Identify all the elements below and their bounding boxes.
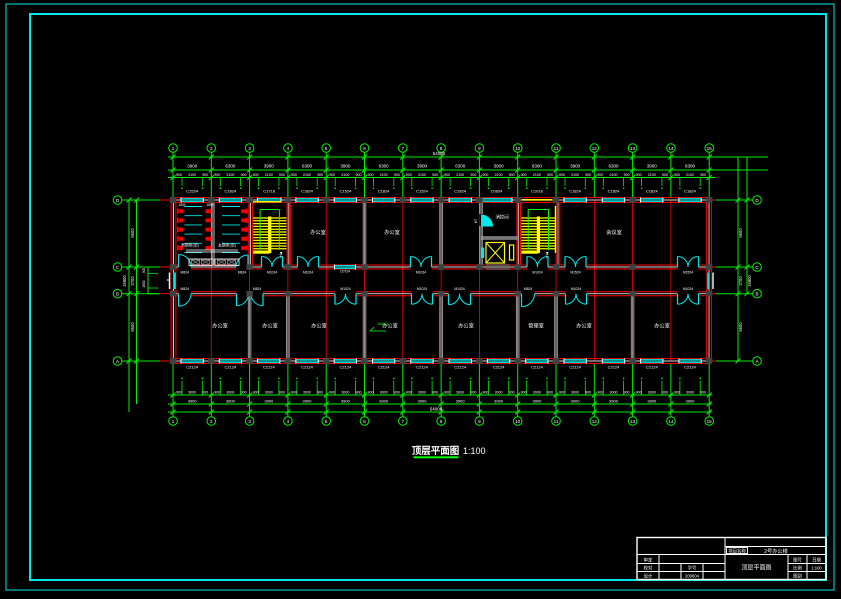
svg-text:900: 900 bbox=[585, 391, 591, 395]
svg-text:5: 5 bbox=[325, 419, 328, 424]
svg-text:900: 900 bbox=[470, 173, 476, 177]
svg-text:C2124: C2124 bbox=[569, 365, 582, 370]
svg-text:900: 900 bbox=[547, 173, 553, 177]
svg-text:审定: 审定 bbox=[644, 556, 653, 563]
svg-text:900: 900 bbox=[597, 173, 603, 177]
svg-text:15: 15 bbox=[707, 146, 713, 151]
svg-text:2100: 2100 bbox=[686, 173, 694, 177]
svg-text:B: B bbox=[755, 292, 758, 297]
svg-text:C1018: C1018 bbox=[531, 189, 544, 194]
svg-text:3000: 3000 bbox=[495, 391, 503, 395]
svg-text:办公室: 办公室 bbox=[310, 228, 326, 236]
svg-text:M7: M7 bbox=[474, 219, 478, 224]
svg-text:3000: 3000 bbox=[265, 391, 273, 395]
svg-text:男厕所(旧): 男厕所(旧) bbox=[181, 243, 199, 248]
svg-text:7: 7 bbox=[402, 146, 405, 151]
svg-text:2100: 2100 bbox=[648, 173, 656, 177]
svg-text:900: 900 bbox=[444, 391, 450, 395]
svg-text:C1524: C1524 bbox=[340, 189, 353, 194]
svg-text:办公室: 办公室 bbox=[311, 322, 327, 330]
svg-text:15900: 15900 bbox=[122, 275, 127, 287]
svg-text:3900: 3900 bbox=[647, 164, 658, 169]
svg-text:6600: 6600 bbox=[130, 228, 135, 238]
svg-text:10: 10 bbox=[515, 146, 521, 151]
svg-text:C1824: C1824 bbox=[378, 189, 391, 194]
svg-text:3000: 3000 bbox=[456, 391, 464, 395]
svg-text:12: 12 bbox=[592, 146, 598, 151]
svg-text:M824: M824 bbox=[238, 271, 247, 275]
svg-text:C1718: C1718 bbox=[263, 189, 276, 194]
svg-text:3900: 3900 bbox=[340, 164, 351, 169]
svg-text:2100: 2100 bbox=[418, 173, 426, 177]
svg-text:办公室: 办公室 bbox=[262, 322, 278, 330]
svg-text:C1824: C1824 bbox=[301, 189, 314, 194]
svg-text:女厕所(旧): 女厕所(旧) bbox=[218, 243, 236, 248]
svg-text:6300: 6300 bbox=[225, 164, 236, 169]
svg-text:设计: 设计 bbox=[644, 573, 653, 580]
svg-text:7: 7 bbox=[402, 419, 405, 424]
svg-text:2: 2 bbox=[210, 146, 213, 151]
svg-text:顶层平面图: 顶层平面图 bbox=[741, 565, 771, 572]
svg-text:3000: 3000 bbox=[686, 391, 694, 395]
svg-text:2100: 2100 bbox=[265, 173, 273, 177]
svg-text:2100: 2100 bbox=[495, 173, 503, 177]
svg-text:3900: 3900 bbox=[264, 399, 274, 404]
svg-text:C2124: C2124 bbox=[646, 365, 659, 370]
svg-text:900: 900 bbox=[368, 391, 374, 395]
svg-text:6300: 6300 bbox=[379, 164, 390, 169]
svg-text:M1024: M1024 bbox=[532, 271, 542, 275]
svg-text:会议室: 会议室 bbox=[606, 228, 622, 236]
svg-text:6: 6 bbox=[363, 419, 366, 424]
svg-text:3900: 3900 bbox=[188, 399, 198, 404]
svg-text:15900: 15900 bbox=[747, 275, 752, 287]
svg-text:3900: 3900 bbox=[609, 399, 619, 404]
svg-text:900: 900 bbox=[482, 391, 488, 395]
svg-text:900: 900 bbox=[547, 391, 553, 395]
svg-text:2100: 2100 bbox=[380, 173, 388, 177]
svg-text:15: 15 bbox=[707, 419, 713, 424]
svg-text:900: 900 bbox=[202, 391, 208, 395]
svg-text:900: 900 bbox=[202, 173, 208, 177]
svg-text:1:100: 1:100 bbox=[811, 566, 822, 571]
svg-text:3000: 3000 bbox=[226, 391, 234, 395]
svg-text:3000: 3000 bbox=[341, 391, 349, 395]
svg-text:6300: 6300 bbox=[532, 164, 543, 169]
svg-text:5: 5 bbox=[325, 146, 328, 151]
svg-text:项目名称: 项目名称 bbox=[728, 548, 746, 555]
svg-text:54000: 54000 bbox=[430, 407, 443, 412]
svg-text:M1524: M1524 bbox=[570, 271, 580, 275]
svg-text:11: 11 bbox=[554, 419, 559, 424]
svg-text:900: 900 bbox=[406, 391, 412, 395]
svg-text:C2124: C2124 bbox=[531, 365, 544, 370]
svg-text:900: 900 bbox=[559, 173, 565, 177]
svg-text:9: 9 bbox=[478, 419, 481, 424]
svg-text:M824: M824 bbox=[524, 287, 533, 291]
svg-text:1: 1 bbox=[172, 419, 175, 424]
svg-text:M824: M824 bbox=[181, 271, 190, 275]
svg-text:900: 900 bbox=[624, 173, 630, 177]
svg-text:900: 900 bbox=[585, 173, 591, 177]
svg-text:C2124: C2124 bbox=[186, 365, 199, 370]
svg-text:办公室: 办公室 bbox=[458, 322, 474, 330]
svg-text:M1024: M1024 bbox=[416, 271, 426, 275]
svg-text:54000: 54000 bbox=[433, 151, 446, 156]
svg-text:900: 900 bbox=[329, 391, 335, 395]
svg-text:1800: 1800 bbox=[142, 280, 146, 287]
svg-text:4: 4 bbox=[287, 146, 290, 151]
svg-text:900: 900 bbox=[176, 173, 182, 177]
svg-text:3900: 3900 bbox=[494, 399, 504, 404]
svg-text:1800: 1800 bbox=[178, 203, 185, 207]
svg-text:消控间: 消控间 bbox=[495, 214, 508, 221]
svg-text:3000: 3000 bbox=[571, 391, 579, 395]
svg-text:6300: 6300 bbox=[685, 164, 696, 169]
svg-text:3900: 3900 bbox=[647, 399, 657, 404]
svg-text:900: 900 bbox=[470, 391, 476, 395]
svg-text:C1824: C1824 bbox=[569, 189, 582, 194]
svg-text:8: 8 bbox=[440, 419, 443, 424]
svg-text:3900: 3900 bbox=[417, 164, 428, 169]
svg-text:C1824: C1824 bbox=[646, 189, 659, 194]
svg-text:4: 4 bbox=[287, 419, 290, 424]
svg-text:M1024: M1024 bbox=[454, 287, 464, 291]
svg-text:M1024: M1024 bbox=[571, 287, 581, 291]
svg-text:900: 900 bbox=[559, 391, 565, 395]
svg-text:1: 1 bbox=[172, 146, 175, 151]
svg-text:6300: 6300 bbox=[608, 164, 619, 169]
svg-text:办公室: 办公室 bbox=[384, 228, 400, 236]
svg-text:C2124: C2124 bbox=[493, 365, 506, 370]
svg-text:3900: 3900 bbox=[226, 399, 236, 404]
svg-text:900: 900 bbox=[700, 173, 706, 177]
svg-text:6300: 6300 bbox=[455, 164, 466, 169]
svg-text:900: 900 bbox=[444, 173, 450, 177]
svg-text:2100: 2100 bbox=[533, 173, 541, 177]
svg-text:900: 900 bbox=[356, 173, 362, 177]
svg-text:900: 900 bbox=[142, 268, 146, 274]
svg-text:900: 900 bbox=[624, 391, 630, 395]
svg-text:M1024: M1024 bbox=[267, 271, 277, 275]
svg-text:M1024: M1024 bbox=[683, 287, 693, 291]
svg-text:C2124: C2124 bbox=[301, 365, 314, 370]
svg-text:900: 900 bbox=[291, 391, 297, 395]
svg-text:3900: 3900 bbox=[570, 164, 581, 169]
svg-text:900: 900 bbox=[662, 173, 668, 177]
svg-text:6600: 6600 bbox=[130, 322, 135, 332]
svg-text:9: 9 bbox=[478, 146, 481, 151]
svg-text:M824: M824 bbox=[253, 287, 262, 291]
svg-text:C1524: C1524 bbox=[186, 189, 199, 194]
svg-text:C1824: C1824 bbox=[454, 189, 467, 194]
svg-text:3: 3 bbox=[248, 419, 251, 424]
svg-text:900: 900 bbox=[241, 391, 247, 395]
svg-text:C2124: C2124 bbox=[378, 365, 391, 370]
svg-text:900: 900 bbox=[356, 391, 362, 395]
svg-text:900: 900 bbox=[241, 173, 247, 177]
svg-text:14: 14 bbox=[668, 419, 674, 424]
svg-text:3900: 3900 bbox=[532, 399, 542, 404]
svg-text:校对: 校对 bbox=[644, 565, 653, 572]
svg-text:3900: 3900 bbox=[341, 399, 351, 404]
svg-text:900: 900 bbox=[279, 173, 285, 177]
svg-text:2100: 2100 bbox=[571, 173, 579, 177]
svg-text:12: 12 bbox=[592, 419, 598, 424]
svg-text:13: 13 bbox=[630, 419, 636, 424]
svg-text:900: 900 bbox=[394, 391, 400, 395]
svg-text:900: 900 bbox=[674, 391, 680, 395]
svg-text:C1824: C1824 bbox=[684, 189, 697, 194]
svg-text:学号: 学号 bbox=[688, 565, 697, 572]
svg-text:2100: 2100 bbox=[456, 173, 464, 177]
svg-text:C0924: C0924 bbox=[491, 189, 504, 194]
svg-text:C1824: C1824 bbox=[608, 189, 621, 194]
svg-text:900: 900 bbox=[662, 391, 668, 395]
svg-text:2700: 2700 bbox=[130, 276, 135, 286]
svg-text:900: 900 bbox=[176, 391, 182, 395]
svg-text:900: 900 bbox=[432, 173, 438, 177]
svg-text:900: 900 bbox=[521, 391, 527, 395]
svg-text:3000: 3000 bbox=[303, 391, 311, 395]
svg-text:比例: 比例 bbox=[793, 565, 802, 572]
svg-text:900: 900 bbox=[674, 173, 680, 177]
svg-text:1M823: 1M823 bbox=[377, 322, 388, 326]
svg-text:M1524: M1524 bbox=[683, 271, 693, 275]
svg-text:6600: 6600 bbox=[738, 228, 743, 238]
svg-text:3900: 3900 bbox=[187, 164, 198, 169]
svg-text:顶层平面图: 顶层平面图 bbox=[412, 446, 460, 457]
svg-text:C0724: C0724 bbox=[340, 270, 350, 274]
svg-text:900: 900 bbox=[253, 391, 259, 395]
svg-text:3900: 3900 bbox=[303, 399, 313, 404]
svg-text:B: B bbox=[116, 292, 119, 297]
svg-text:900: 900 bbox=[317, 391, 323, 395]
svg-text:3000: 3000 bbox=[533, 391, 541, 395]
svg-text:900: 900 bbox=[521, 173, 527, 177]
svg-text:办公室: 办公室 bbox=[654, 322, 670, 330]
svg-text:6300: 6300 bbox=[302, 164, 313, 169]
svg-text:C2124: C2124 bbox=[263, 365, 276, 370]
svg-text:1800: 1800 bbox=[206, 203, 213, 207]
svg-text:图别: 图别 bbox=[793, 573, 802, 580]
svg-text:2100: 2100 bbox=[303, 173, 311, 177]
svg-text:900: 900 bbox=[329, 173, 335, 177]
svg-text:900: 900 bbox=[368, 173, 374, 177]
svg-text:13: 13 bbox=[630, 146, 636, 151]
svg-text:C2124: C2124 bbox=[340, 365, 353, 370]
svg-text:C2124: C2124 bbox=[608, 365, 621, 370]
svg-text:900: 900 bbox=[700, 391, 706, 395]
svg-text:3000: 3000 bbox=[188, 391, 196, 395]
svg-text:900: 900 bbox=[406, 173, 412, 177]
svg-text:200604: 200604 bbox=[685, 574, 700, 579]
svg-text:2700: 2700 bbox=[738, 276, 743, 286]
svg-text:3000: 3000 bbox=[648, 391, 656, 395]
svg-text:1:100: 1:100 bbox=[463, 446, 486, 456]
svg-text:900: 900 bbox=[291, 173, 297, 177]
svg-text:900: 900 bbox=[214, 173, 220, 177]
svg-text:3000: 3000 bbox=[380, 391, 388, 395]
svg-text:3000: 3000 bbox=[418, 391, 426, 395]
svg-text:6600: 6600 bbox=[738, 322, 743, 332]
svg-text:2100: 2100 bbox=[226, 173, 234, 177]
svg-text:3900: 3900 bbox=[456, 399, 466, 404]
svg-text:3900: 3900 bbox=[494, 164, 505, 169]
svg-text:14: 14 bbox=[668, 146, 674, 151]
svg-text:3900: 3900 bbox=[264, 164, 275, 169]
svg-text:6: 6 bbox=[363, 146, 366, 151]
svg-text:900: 900 bbox=[253, 173, 259, 177]
svg-text:900: 900 bbox=[636, 391, 642, 395]
svg-text:C2124: C2124 bbox=[225, 365, 238, 370]
svg-text:900: 900 bbox=[597, 391, 603, 395]
svg-text:900: 900 bbox=[394, 173, 400, 177]
svg-text:900: 900 bbox=[636, 173, 642, 177]
svg-text:2100: 2100 bbox=[341, 173, 349, 177]
svg-text:M1024: M1024 bbox=[340, 287, 350, 291]
svg-text:办公室: 办公室 bbox=[576, 322, 592, 330]
svg-text:M1024: M1024 bbox=[303, 271, 313, 275]
svg-text:900: 900 bbox=[317, 173, 323, 177]
svg-text:管理室: 管理室 bbox=[528, 322, 544, 330]
svg-text:900: 900 bbox=[482, 173, 488, 177]
svg-text:900: 900 bbox=[509, 173, 515, 177]
svg-text:900: 900 bbox=[509, 391, 515, 395]
svg-text:2: 2 bbox=[210, 419, 213, 424]
svg-text:2100: 2100 bbox=[188, 173, 196, 177]
svg-text:M824: M824 bbox=[181, 287, 190, 291]
svg-text:3900: 3900 bbox=[571, 399, 581, 404]
svg-text:900: 900 bbox=[279, 391, 285, 395]
svg-text:900: 900 bbox=[214, 391, 220, 395]
svg-text:3900: 3900 bbox=[379, 399, 389, 404]
svg-text:3900: 3900 bbox=[418, 399, 428, 404]
svg-text:办公室: 办公室 bbox=[212, 322, 228, 330]
svg-text:C2124: C2124 bbox=[684, 365, 697, 370]
svg-text:C1524: C1524 bbox=[416, 189, 429, 194]
svg-text:C2124: C2124 bbox=[454, 365, 467, 370]
svg-text:900: 900 bbox=[432, 391, 438, 395]
svg-text:2号办公楼: 2号办公楼 bbox=[764, 547, 788, 555]
svg-text:11: 11 bbox=[554, 146, 559, 151]
svg-text:C1824: C1824 bbox=[225, 189, 238, 194]
svg-text:M1024: M1024 bbox=[417, 287, 427, 291]
svg-text:2100: 2100 bbox=[610, 173, 618, 177]
svg-text:3000: 3000 bbox=[610, 391, 618, 395]
svg-text:3: 3 bbox=[248, 146, 251, 151]
svg-text:3900: 3900 bbox=[686, 399, 696, 404]
svg-text:10: 10 bbox=[515, 419, 521, 424]
svg-text:C2124: C2124 bbox=[416, 365, 429, 370]
